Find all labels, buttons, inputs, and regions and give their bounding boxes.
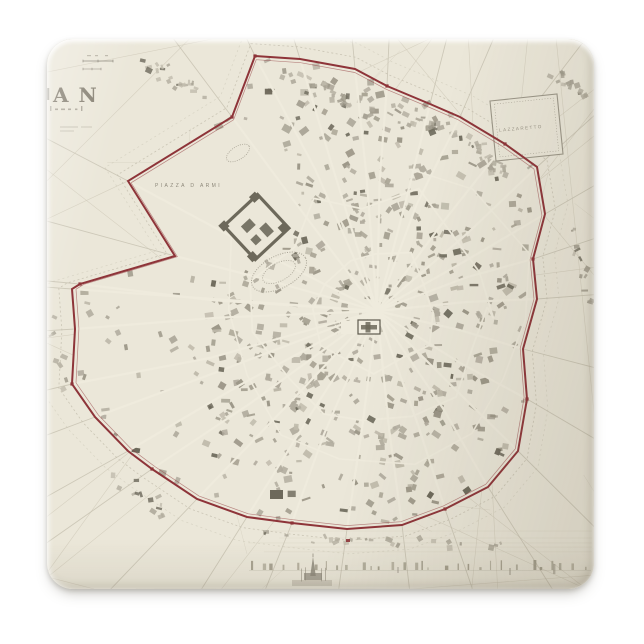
map-artwork <box>47 39 594 589</box>
ceramic-tile[interactable]: AN PIAZZA D ARMI LAZZARETTO <box>47 39 594 589</box>
milan-map-print: AN PIAZZA D ARMI LAZZARETTO <box>47 39 594 589</box>
product-photo-canvas: AN PIAZZA D ARMI LAZZARETTO <box>0 0 644 644</box>
piazza-d-armi-label: PIAZZA D ARMI <box>155 183 222 189</box>
map-title-fragment: AN <box>52 83 107 107</box>
